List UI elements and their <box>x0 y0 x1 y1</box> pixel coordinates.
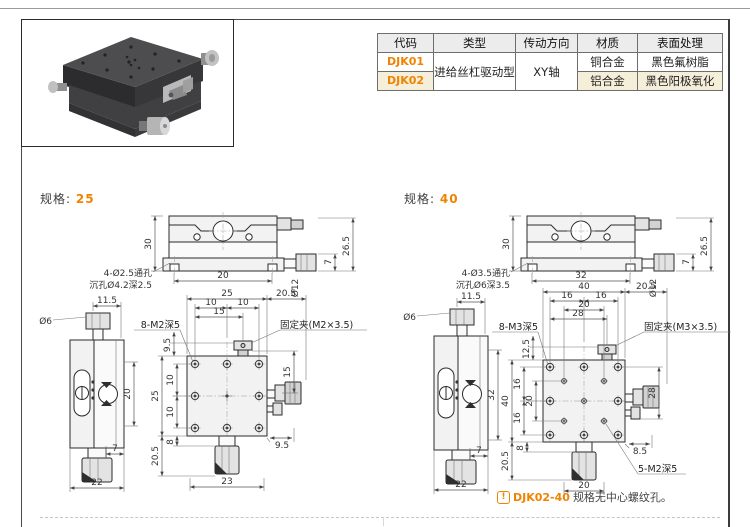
clamp-callout-40: 固定夹(M3×3.5) <box>644 321 717 333</box>
dim-side25-top: 11.5 <box>97 296 117 306</box>
code-djk01: DJK01 <box>378 53 434 72</box>
dim-plan25-l1: 9.5 <box>163 338 173 352</box>
dim-front40-rh: 26.5 <box>700 236 710 256</box>
center-tap-callout-40: 5-M2深5 <box>638 464 677 475</box>
dim-front25-w: 20 <box>217 271 229 281</box>
dim-plan25-t2: 10 <box>237 298 249 308</box>
dim-plan40-l3: 16 <box>513 378 523 390</box>
col-header-direction: 传动方向 <box>516 34 578 53</box>
note25-line1: 4-Ø2.5通孔 <box>104 268 152 279</box>
spec40-plan-view: 40 20.5 16 16 20 28 8-M3深5 固定夹(M3×3.5) 1… <box>492 282 731 495</box>
table-row: DJK01 进给丝杠驱动型 XY轴 铜合金 黑色氟树脂 <box>378 53 723 72</box>
clamp-callout-25: 固定夹(M2×3.5) <box>280 319 353 331</box>
dim-side40-travel: 32 <box>487 389 497 400</box>
micrometer-knob-right <box>201 50 219 66</box>
dim-front40-h: 30 <box>502 238 512 250</box>
dim-front40-small: 7 <box>682 259 692 265</box>
dim-side25-b22: 22 <box>91 478 102 488</box>
note25-line2: 沉孔Ø4.2深2.5 <box>89 280 152 291</box>
clamp-part <box>234 341 252 356</box>
dim-plan25-br: 9.5 <box>275 441 289 451</box>
spec25-side-view: 11.5 Ø6 20 7 22 <box>39 296 138 492</box>
spec-table-header-row: 代码 类型 传动方向 材质 表面处理 <box>378 34 723 53</box>
dim-plan40-l1: 12.5 <box>522 339 532 359</box>
footnote-code: DJK02-40 <box>513 491 570 504</box>
xy-stage-illustration <box>48 37 219 137</box>
dim-plan25-bw: 23 <box>221 477 232 487</box>
x-axis-knob <box>267 382 301 415</box>
product-photo-box <box>21 19 234 147</box>
dim-plan40-t1: 16 <box>561 291 573 301</box>
bottom-dashed-rule <box>40 517 720 518</box>
dim-plan40-l2: 40 <box>501 395 511 407</box>
dim-side40-top: 11.5 <box>461 292 481 302</box>
dim-plan40-bl1: 20.5 <box>501 451 511 471</box>
dim-plan25-r1: 15 <box>283 366 293 377</box>
type-cell: 进给丝杠驱动型 <box>434 53 516 91</box>
footnote: ! DJK02-40 规格无中心螺纹孔。 <box>497 489 672 505</box>
col-header-type: 类型 <box>434 34 516 53</box>
dim-plan25-t3: 15 <box>213 307 224 317</box>
surface-djk02: 黑色阳极氧化 <box>638 72 723 91</box>
direction-cell: XY轴 <box>516 53 578 91</box>
y-axis-knob <box>572 442 596 480</box>
dim-side25-knob: Ø6 <box>39 316 52 327</box>
code-djk02: DJK02 <box>378 72 434 91</box>
spec40-drawing: 30 32 26.5 7 Ø12 4-Ø3.5通孔 沉孔Ø6深3.5 11.5 <box>386 198 741 510</box>
dim-plan40-r1: 28 <box>648 387 658 399</box>
dim-front25-h: 30 <box>144 238 154 250</box>
y-axis-knob <box>215 436 239 474</box>
dim-plan40-l4: 20 <box>525 395 535 407</box>
dim-plan25-l4: 10 <box>166 406 176 418</box>
dim-front40-w: 32 <box>575 271 586 281</box>
note40-line1: 4-Ø3.5通孔 <box>462 268 510 279</box>
clamp-part <box>598 345 616 360</box>
dim-plan25-bl1: 20.5 <box>151 446 161 466</box>
spec25-front-view: 30 20 26.5 7 Ø12 4-Ø2.5通孔 沉孔Ø4.2深2.5 <box>89 212 356 297</box>
dim-plan40-wr: 20.5 <box>636 282 656 292</box>
footnote-text: 规格无中心螺纹孔。 <box>573 489 672 505</box>
dim-plan40-l5: 16 <box>513 412 523 424</box>
dim-plan25-wr: 20.5 <box>276 289 296 299</box>
dim-side40-b7: 7 <box>476 446 482 456</box>
spec25-drawing: 30 20 26.5 7 Ø12 4-Ø2.5通孔 沉孔Ø4.2深2.5 <box>22 198 377 510</box>
surface-djk01: 黑色氟树脂 <box>638 53 723 72</box>
tap-callout-25: 8-M2深5 <box>141 320 180 331</box>
dim-plan40-br: 8.5 <box>633 447 647 457</box>
material-djk02: 铝合金 <box>578 72 638 91</box>
dim-plan40-bl2: 8 <box>516 445 526 451</box>
spec25-plan-view: 25 20.5 10 10 15 8-M2深5 固定夹(M2×3.5) 9.5 … <box>134 289 367 491</box>
bottom-column-divider <box>383 517 384 526</box>
col-header-surface: 表面处理 <box>638 34 723 53</box>
product-photo <box>35 25 221 141</box>
dim-side25-travel: 20 <box>123 388 133 400</box>
dim-plan25-l3: 10 <box>166 374 176 386</box>
dim-plan25-bl2: 8 <box>166 439 176 445</box>
dim-side40-b22: 22 <box>455 480 466 490</box>
spec-table: 代码 类型 传动方向 材质 表面处理 DJK01 进给丝杠驱动型 XY轴 铜合金… <box>377 33 723 91</box>
material-djk01: 铜合金 <box>578 53 638 72</box>
dim-plan40-t4: 28 <box>572 309 584 319</box>
tap-callout-40: 8-M3深5 <box>499 322 538 333</box>
note40-line2: 沉孔Ø6深3.5 <box>456 280 510 291</box>
dim-plan40-t2: 16 <box>595 291 607 301</box>
dim-plan25-w: 25 <box>221 289 232 299</box>
dim-side25-b7: 7 <box>112 444 118 454</box>
dim-plan25-l2: 25 <box>151 390 161 401</box>
dim-front25-rh: 26.5 <box>342 236 352 256</box>
dim-plan40-w: 40 <box>578 282 590 292</box>
dim-side40-knob: Ø6 <box>403 312 416 323</box>
spec40-side-view: 11.5 Ø6 32 7 22 <box>403 292 502 494</box>
note-marker-icon: ! <box>497 491 510 504</box>
top-rule <box>0 8 750 9</box>
col-header-material: 材质 <box>578 34 638 53</box>
dim-front25-small: 7 <box>324 259 334 265</box>
col-header-code: 代码 <box>378 34 434 53</box>
